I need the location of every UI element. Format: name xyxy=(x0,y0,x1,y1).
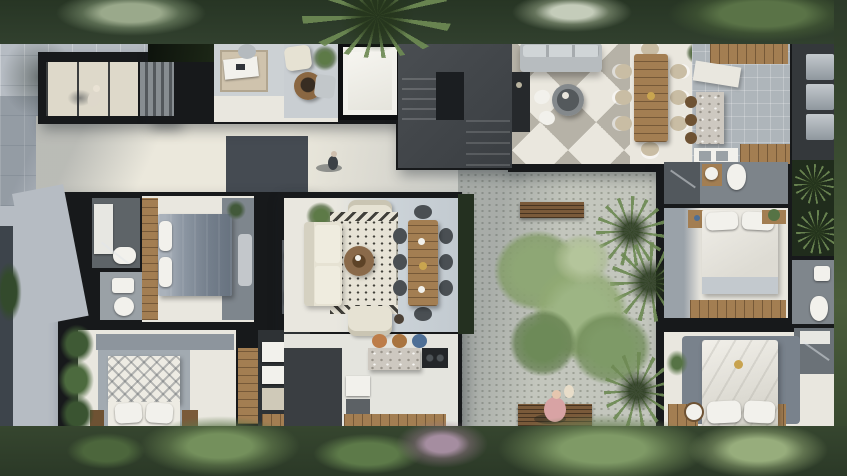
dining-chair-r1 xyxy=(670,64,687,79)
bedroom1-headboard-wood xyxy=(142,198,158,320)
master-pillow-a xyxy=(706,400,741,424)
sofa-cushion-a xyxy=(315,225,340,263)
dining-chair-l1 xyxy=(615,64,632,79)
tree-canopy-highlight xyxy=(542,224,622,294)
appliance-2 xyxy=(806,84,834,110)
skylight-panel xyxy=(348,52,392,110)
sofa-backrest xyxy=(304,222,314,306)
right-plantbed-palm-1 xyxy=(794,164,834,204)
terrace-table-items xyxy=(562,92,569,99)
terrace-round-table xyxy=(552,84,584,116)
master-round-table xyxy=(686,404,702,420)
indoor-chair-head-top xyxy=(414,205,432,219)
kitchen-stool-2 xyxy=(392,334,407,348)
bath2-sink xyxy=(705,167,718,180)
master-bed-accent xyxy=(734,360,743,369)
sink-basin-1 xyxy=(699,151,711,161)
bedroom2-headboard-wall xyxy=(96,334,234,350)
bar-items xyxy=(516,82,522,88)
staircase-treads xyxy=(140,62,174,116)
side-table-small xyxy=(394,314,404,324)
bedroom3-desk-item xyxy=(694,215,700,221)
indoor-table-plate-1 xyxy=(418,238,425,245)
indoor-chair-l2 xyxy=(393,254,407,270)
bed3-throw xyxy=(702,277,778,294)
desk-laptop xyxy=(236,64,245,70)
kitchen-wood-counter-top xyxy=(710,42,788,64)
person-patio-body xyxy=(328,156,338,170)
kitchen-stool-1 xyxy=(372,334,387,348)
bed2-pillow-a xyxy=(114,402,142,424)
pantry-dark-floor xyxy=(284,348,342,432)
bedroom2-wood-door xyxy=(238,348,258,424)
bed3-pillow-a xyxy=(706,211,739,231)
appliance-1 xyxy=(806,54,834,80)
lounge-chair-2 xyxy=(314,74,337,99)
indoor-chair-r2 xyxy=(439,254,453,270)
tree-canopy-blob-4 xyxy=(498,298,588,388)
indoor-chair-r1 xyxy=(439,228,453,244)
indoor-chair-l1 xyxy=(393,228,407,244)
kitchen-island xyxy=(368,348,420,370)
kitchen-appliance-white xyxy=(346,376,370,396)
courtyard-plantbed-left xyxy=(458,194,474,334)
veg-bottom-blob-5 xyxy=(688,422,828,476)
armchair-bottom xyxy=(348,306,392,336)
child-courtyard xyxy=(564,385,574,398)
kitchen-island-outdoor xyxy=(696,92,724,144)
person-entry-head xyxy=(93,85,100,92)
appliance-3 xyxy=(806,114,834,140)
floorplan-render xyxy=(0,0,847,476)
sofa-cushion-b xyxy=(315,266,340,304)
bath3-toilet xyxy=(810,296,828,321)
outdoor-sofa-cushions xyxy=(523,45,599,57)
indoor-table-plate-3 xyxy=(418,286,425,293)
bath1b-sink xyxy=(112,278,134,293)
coffee-table-round xyxy=(344,246,374,276)
deck-steps-lower xyxy=(466,120,510,166)
bath3-sink xyxy=(814,266,830,281)
closet-shelf-5 xyxy=(262,388,284,410)
bed2-pillow-b xyxy=(145,402,173,424)
indoor-chair-l3 xyxy=(393,280,407,296)
person-patio-head xyxy=(331,151,337,157)
table-centerpiece xyxy=(647,92,655,100)
rug-band-top xyxy=(330,212,398,221)
deck-stairwell-void xyxy=(436,72,464,120)
bath2-shower-dark xyxy=(664,162,700,204)
kitchen-wood-counter-bottom xyxy=(740,144,790,164)
master-pillow-b xyxy=(743,400,775,424)
indoor-chair-head-bottom xyxy=(414,307,432,321)
cooktop xyxy=(422,348,448,368)
stool-outdoor-3 xyxy=(685,132,697,144)
patio-dark-roof-patch xyxy=(226,136,308,198)
bed2-duvet-patterned xyxy=(108,356,180,404)
bed1-bench xyxy=(238,234,252,286)
stool-outdoor-1 xyxy=(685,96,697,108)
bed1-pillow-a xyxy=(159,221,172,251)
terrace-bar-unit xyxy=(512,72,530,132)
dining-chair-head-bottom xyxy=(641,142,659,156)
left-wall-plant xyxy=(0,252,26,332)
bath1-vanity xyxy=(94,204,113,254)
sink-basin-2 xyxy=(716,151,728,161)
vegetation-right-column xyxy=(834,0,847,432)
lounge-armchair xyxy=(283,44,312,71)
kitchen-stool-3 xyxy=(412,334,427,348)
bedroom3-deck-strip xyxy=(690,300,786,318)
desk-chair xyxy=(238,44,256,59)
bath2-toilet xyxy=(727,164,746,190)
bedroom3-shelf-plant xyxy=(768,209,780,221)
person-courtyard-head xyxy=(552,390,561,399)
closet-shelf-3 xyxy=(262,366,284,384)
veg-bottom-flowers xyxy=(396,420,488,468)
bath1b-toilet xyxy=(114,297,134,316)
indoor-table-plate-2 xyxy=(419,262,427,270)
veg-bottom-blob-4 xyxy=(498,414,708,476)
coffee-table-item xyxy=(355,255,361,261)
right-plantbed-palm-2 xyxy=(796,210,838,254)
stool-outdoor-2 xyxy=(685,114,697,126)
closet-shelf-1 xyxy=(262,342,284,362)
bed1-pillow-b xyxy=(159,257,172,287)
dining-chair-l2 xyxy=(615,90,632,105)
master-plant xyxy=(666,350,688,376)
dining-chair-l3 xyxy=(615,116,632,131)
bedroom1-plant xyxy=(226,200,246,220)
veg-bottom-blob-2 xyxy=(140,416,300,476)
indoor-chair-r3 xyxy=(439,280,453,296)
